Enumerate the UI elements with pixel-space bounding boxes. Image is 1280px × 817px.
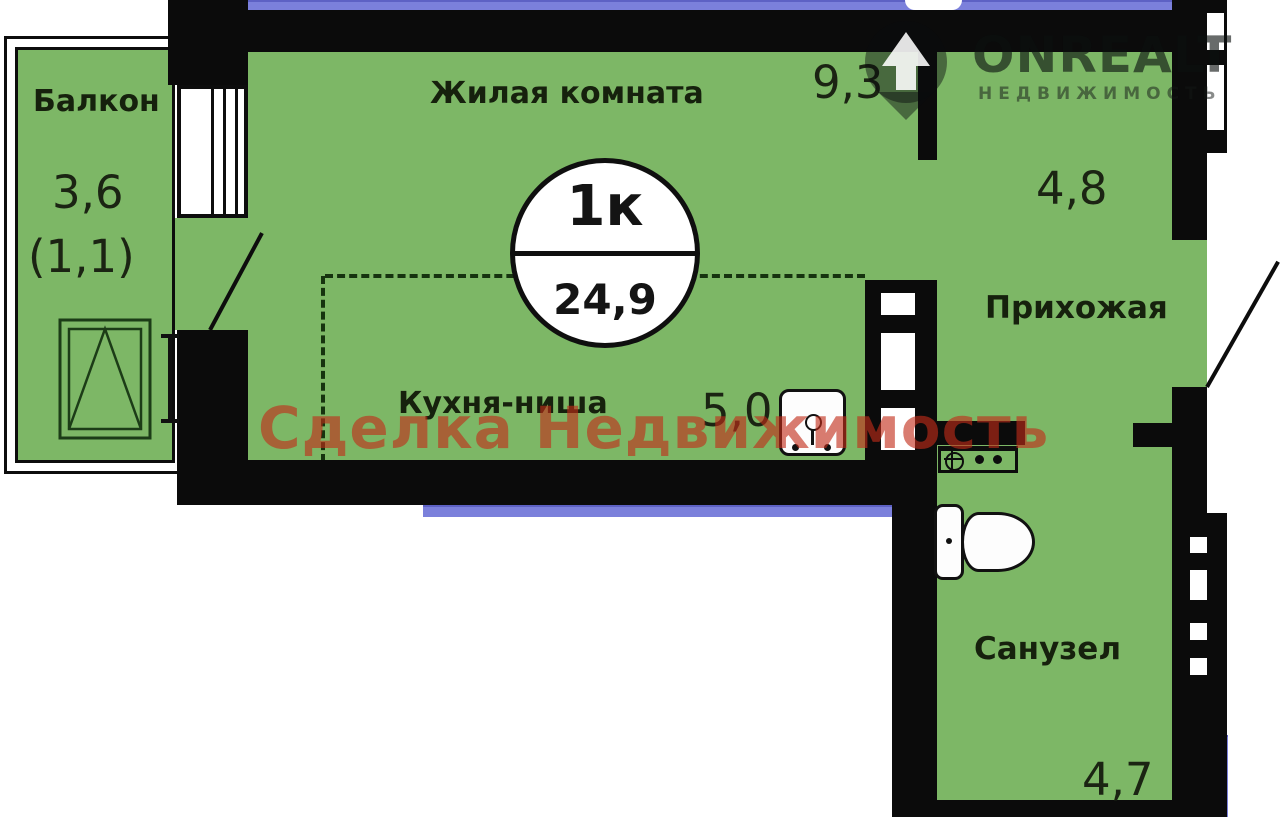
wall-kitchen-bottom bbox=[177, 460, 892, 505]
door-jamb-cap bbox=[161, 334, 179, 338]
door-jamb-cap bbox=[161, 419, 179, 423]
top-notch bbox=[905, 0, 962, 10]
right-wall-niche bbox=[1190, 658, 1207, 675]
vent-opening bbox=[881, 333, 915, 390]
hallway-label: Прихожая bbox=[985, 290, 1168, 326]
top-accent-strip bbox=[212, 0, 1172, 10]
balcony-window-icon bbox=[58, 318, 152, 440]
bathroom-area: 4,7 bbox=[1082, 753, 1154, 806]
bathroom-floor bbox=[937, 445, 1172, 805]
agency-watermark: Сделка Недвижимость bbox=[258, 394, 1049, 462]
wall-bathroom-bottom bbox=[892, 800, 1227, 817]
wall-right-below-door bbox=[1172, 387, 1207, 513]
toilet-icon bbox=[934, 500, 1038, 584]
hallway-area: 4,8 bbox=[1036, 162, 1108, 215]
right-wall-niche bbox=[1190, 537, 1207, 553]
apartment-badge: 1к 24,9 bbox=[510, 158, 700, 348]
living-room-label: Жилая комната bbox=[430, 76, 704, 111]
balcony-label: Балкон bbox=[33, 84, 160, 119]
balcony-area-reduced: (1,1) bbox=[28, 230, 135, 283]
balcony-area: 3,6 bbox=[52, 166, 124, 219]
wall-bathroom-left bbox=[892, 452, 937, 817]
onrealt-logo: ONREALT НЕДВИЖИМОСТЬ bbox=[860, 14, 952, 124]
location-pin-icon bbox=[860, 14, 952, 120]
floor-plan: 1к 24,9 Балкон 3,6 (1,1) Жилая комната 9… bbox=[0, 0, 1280, 817]
door-jamb bbox=[168, 337, 172, 422]
badge-total-area: 24,9 bbox=[553, 256, 657, 344]
bathroom-label: Санузел bbox=[974, 631, 1121, 667]
logo-brand-text: ONREALT bbox=[972, 26, 1232, 84]
entrance-door-leaf-icon bbox=[1205, 261, 1280, 388]
right-wall-niche bbox=[1190, 570, 1207, 600]
right-wall-niche bbox=[1190, 623, 1207, 640]
logo-subtitle-text: НЕДВИЖИМОСТЬ bbox=[978, 84, 1222, 104]
window-icon bbox=[177, 85, 248, 218]
bottom-accent-strip bbox=[423, 505, 892, 517]
wall-right-above-door bbox=[1172, 153, 1207, 240]
vent-opening bbox=[881, 293, 915, 315]
badge-room-type: 1к bbox=[567, 163, 644, 251]
wall-hallway-bath-stub bbox=[1133, 423, 1172, 447]
wall-balcony-pillar bbox=[177, 330, 248, 463]
